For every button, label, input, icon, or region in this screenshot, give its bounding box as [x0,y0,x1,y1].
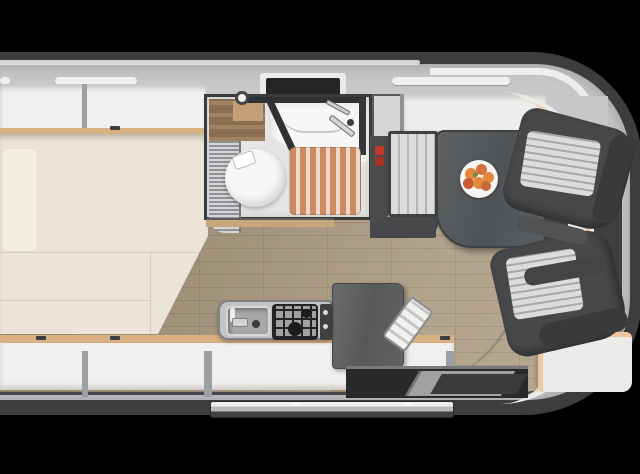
bed-seam [0,300,150,301]
floorplan-stage [0,0,640,474]
skylight-glass [266,78,340,95]
entry-step-tread [430,374,528,394]
step-bar-foot [404,403,412,406]
hob-knob [323,324,328,329]
locker-latch [36,336,46,340]
bathroom-threshold [206,218,334,227]
shelf-divider [204,351,212,397]
hob-burner [288,322,302,336]
partition-pivot [235,91,249,105]
hob-burner [302,309,311,318]
seat-cushion [505,248,584,320]
washroom [204,94,372,220]
bed-seam [0,252,206,253]
shower-partition [237,97,363,103]
locker-latch [110,126,120,130]
window-strip [392,77,510,85]
hob-knob [323,310,328,315]
step-bar-foot [292,403,300,406]
sink-knob [252,320,260,328]
bed-pillow-panel [2,148,38,252]
hob-control-strip [320,304,332,340]
kitchen-unit [218,300,332,340]
shelf-divider [82,351,88,397]
two-burner-hob [272,304,318,340]
seat-cushion [519,130,601,197]
bed-seam [150,252,151,334]
mixer-knob [347,119,354,126]
wooden-shower-mat [289,147,361,215]
locker-latch [110,336,120,340]
overhead-locker-row-top [0,84,206,134]
awning-rail [0,60,420,65]
entry-step-bar [210,401,454,418]
sink-faucet-spout [232,318,248,327]
shelf-divider [82,84,87,128]
door-threshold [346,366,528,369]
